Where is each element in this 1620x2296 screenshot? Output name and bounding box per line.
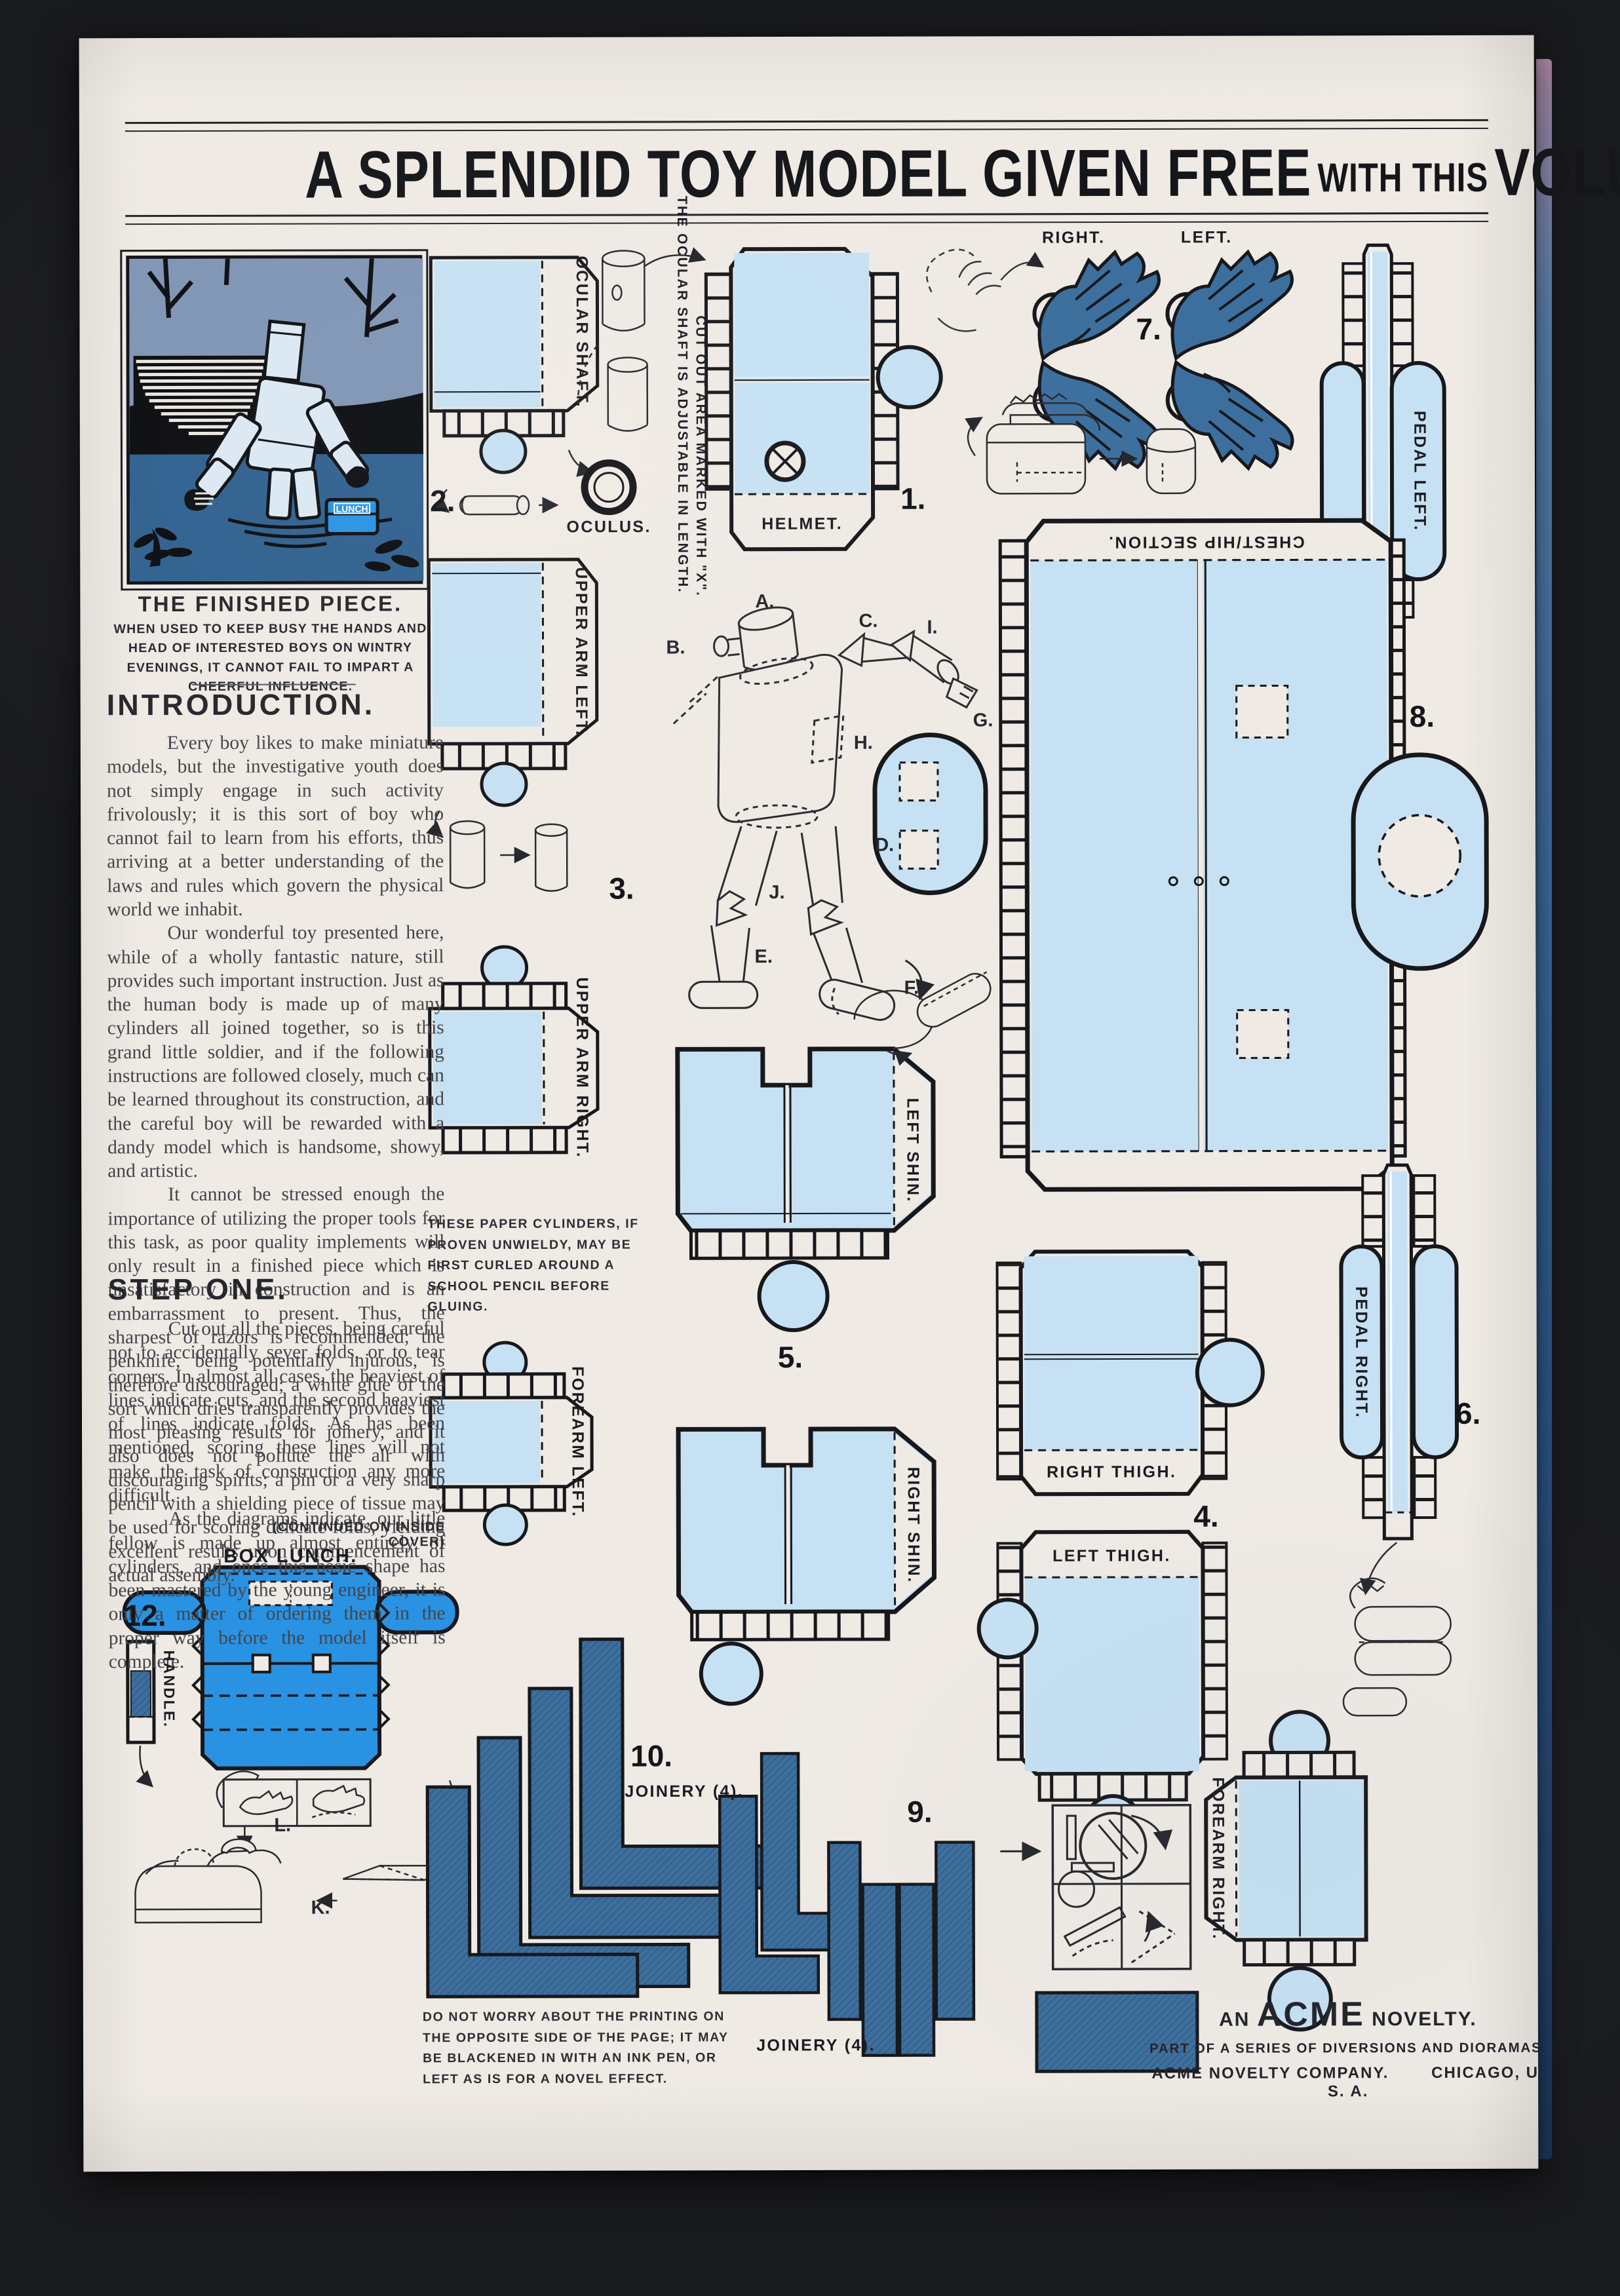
number-7: 7. bbox=[1136, 311, 1161, 347]
label-upper-arm-right: UPPER ARM RIGHT. bbox=[572, 977, 592, 1158]
label-joinery-10: JOINERY (4). bbox=[625, 1782, 744, 1801]
piece-joinery-set-9 bbox=[720, 1753, 1040, 2056]
label-glove-left: LEFT. bbox=[1181, 228, 1233, 247]
joinery-instruction-box bbox=[1052, 1805, 1191, 1969]
number-3: 3. bbox=[609, 871, 634, 906]
letter-i: I. bbox=[927, 617, 937, 639]
piece-forearm-right bbox=[1206, 1712, 1366, 2030]
piece-glove-left bbox=[1167, 252, 1292, 468]
label-right-thigh: RIGHT THIGH. bbox=[1047, 1463, 1176, 1482]
number-8: 8. bbox=[1410, 698, 1435, 734]
page-title: A SPLENDID TOY MODEL GIVEN FREE WITH THI… bbox=[305, 128, 1620, 215]
letter-b: B. bbox=[666, 637, 685, 659]
finished-piece-illustration: LUNCH bbox=[120, 249, 429, 590]
letter-c: C. bbox=[858, 611, 877, 632]
title-main-2: VOLUME. bbox=[1494, 134, 1620, 210]
label-glove-right: RIGHT. bbox=[1042, 229, 1105, 248]
label-forearm-left: FOREARM LEFT. bbox=[568, 1366, 587, 1518]
letter-h: H. bbox=[854, 733, 873, 754]
label-pedal-left: PEDAL LEFT. bbox=[1410, 411, 1429, 531]
lunch-box-label: LUNCH bbox=[336, 503, 368, 514]
piece-chest-hip-section bbox=[1000, 520, 1405, 1189]
footer-company-line: ACME NOVELTY COMPANY. CHICAGO, U. S. A. bbox=[1145, 2064, 1551, 2101]
label-upper-arm-left: UPPER ARM LEFT. bbox=[571, 567, 591, 737]
label-chest-hip: CHEST/HIP SECTION. bbox=[1108, 532, 1305, 552]
assembly-robot-sketch bbox=[673, 603, 977, 1024]
label-forearm-right: FOREARM RIGHT. bbox=[1208, 1777, 1228, 1940]
letter-f: F. bbox=[904, 978, 919, 999]
note-ocular-adjustable: THE OCULAR SHAFT IS ADJUSTABLE IN LENGTH… bbox=[674, 196, 690, 594]
letter-g: G. bbox=[973, 710, 993, 731]
footer-series-line: PART OF A SERIES OF DIVERSIONS AND DIORA… bbox=[1145, 2040, 1551, 2057]
step-one-heading: STEP ONE. bbox=[108, 1272, 288, 1307]
footer-novelty: NOVELTY. bbox=[1372, 2008, 1477, 2030]
piece-hip-cap bbox=[875, 735, 986, 892]
page-header: A SPLENDID TOY MODEL GIVEN FREE WITH THI… bbox=[125, 119, 1488, 225]
footer-an: AN bbox=[1219, 2009, 1250, 2031]
piece-shoulder-cap bbox=[1353, 755, 1487, 968]
piece-right-shin bbox=[678, 1429, 935, 1704]
acme-footer: AN ACME NOVELTY. PART OF A SERIES OF DIV… bbox=[1145, 1995, 1551, 2101]
cutout-sheet-page: A SPLENDID TOY MODEL GIVEN FREE WITH THI… bbox=[79, 35, 1539, 2172]
shin-curl-sketch bbox=[855, 968, 996, 1055]
piece-left-shin bbox=[678, 1049, 934, 1331]
pedal-assembly-sketch bbox=[1343, 1542, 1451, 1715]
label-helmet: HELMET. bbox=[762, 514, 843, 533]
label-right-shin: RIGHT SHIN. bbox=[904, 1467, 923, 1584]
label-left-shin: LEFT SHIN. bbox=[902, 1098, 921, 1203]
introduction-paragraph-2: Our wonderful toy presented here, while … bbox=[107, 921, 444, 1183]
letter-k: K. bbox=[311, 1898, 330, 1919]
letter-l: L. bbox=[274, 1815, 291, 1837]
number-9: 9. bbox=[907, 1794, 932, 1829]
footer-company: ACME NOVELTY COMPANY. bbox=[1151, 2064, 1389, 2082]
glove-fold-sketch bbox=[927, 250, 1043, 332]
label-oculus: OCULUS. bbox=[566, 518, 651, 537]
note-cut-out-x: CUT OUT AREA MARKED WITH "X". bbox=[692, 315, 708, 597]
finished-piece-heading: THE FINISHED PIECE. bbox=[106, 591, 434, 617]
acme-novelty-line: AN ACME NOVELTY. bbox=[1145, 1995, 1551, 2035]
note-cylinders: THESE PAPER CYLINDERS, IF PROVEN UNWIELD… bbox=[427, 1214, 644, 1318]
label-handle: HANDLE. bbox=[160, 1651, 178, 1729]
number-5: 5. bbox=[778, 1339, 803, 1375]
footer-acme: ACME bbox=[1257, 1995, 1365, 2033]
box-lunch-howto-sketches bbox=[135, 1745, 459, 1923]
introduction-paragraph-1: Every boy likes to make miniature models… bbox=[107, 731, 444, 921]
label-left-thigh: LEFT THIGH. bbox=[1052, 1546, 1171, 1565]
label-box-lunch: BOX LUNCH. bbox=[223, 1546, 358, 1567]
illustration-frame: LUNCH bbox=[126, 255, 423, 584]
title-main-1: A SPLENDID TOY MODEL GIVEN FREE bbox=[305, 135, 1311, 212]
step-one-paragraph-1: Cut out all the pieces, being careful no… bbox=[108, 1316, 446, 1507]
number-10: 10. bbox=[630, 1738, 672, 1773]
number-6: 6. bbox=[1456, 1396, 1480, 1431]
cylinder-fold-sketch bbox=[435, 811, 567, 891]
piece-joinery-set-10 bbox=[427, 1639, 792, 1997]
letter-d: D. bbox=[875, 835, 894, 856]
book-fore-edge bbox=[1536, 59, 1552, 2159]
note-printing: DO NOT WORRY ABOUT THE PRINTING ON THE O… bbox=[423, 2006, 737, 2090]
piece-right-thigh bbox=[997, 1252, 1263, 1495]
introduction-heading: INTRODUCTION. bbox=[107, 687, 376, 722]
number-12: 12. bbox=[125, 1598, 166, 1633]
letter-j: J. bbox=[769, 882, 784, 904]
number-4: 4. bbox=[1193, 1499, 1218, 1534]
robot-pond-scene: LUNCH bbox=[129, 258, 423, 581]
piece-glove-right bbox=[1034, 252, 1159, 469]
number-2: 2. bbox=[430, 483, 455, 518]
label-ocular-shaft: OCULAR SHAFT. bbox=[572, 256, 591, 408]
number-1: 1. bbox=[900, 481, 925, 516]
label-pedal-right: PEDAL RIGHT. bbox=[1351, 1286, 1370, 1419]
letter-e: E. bbox=[754, 946, 772, 968]
piece-oculus bbox=[585, 463, 633, 512]
piece-left-thigh bbox=[978, 1532, 1227, 1852]
label-joinery-9: JOINERY (4). bbox=[756, 2036, 876, 2055]
title-small: WITH THIS bbox=[1315, 155, 1492, 201]
chest-assembly-sketch bbox=[968, 394, 1195, 494]
letter-a: A. bbox=[755, 591, 774, 613]
